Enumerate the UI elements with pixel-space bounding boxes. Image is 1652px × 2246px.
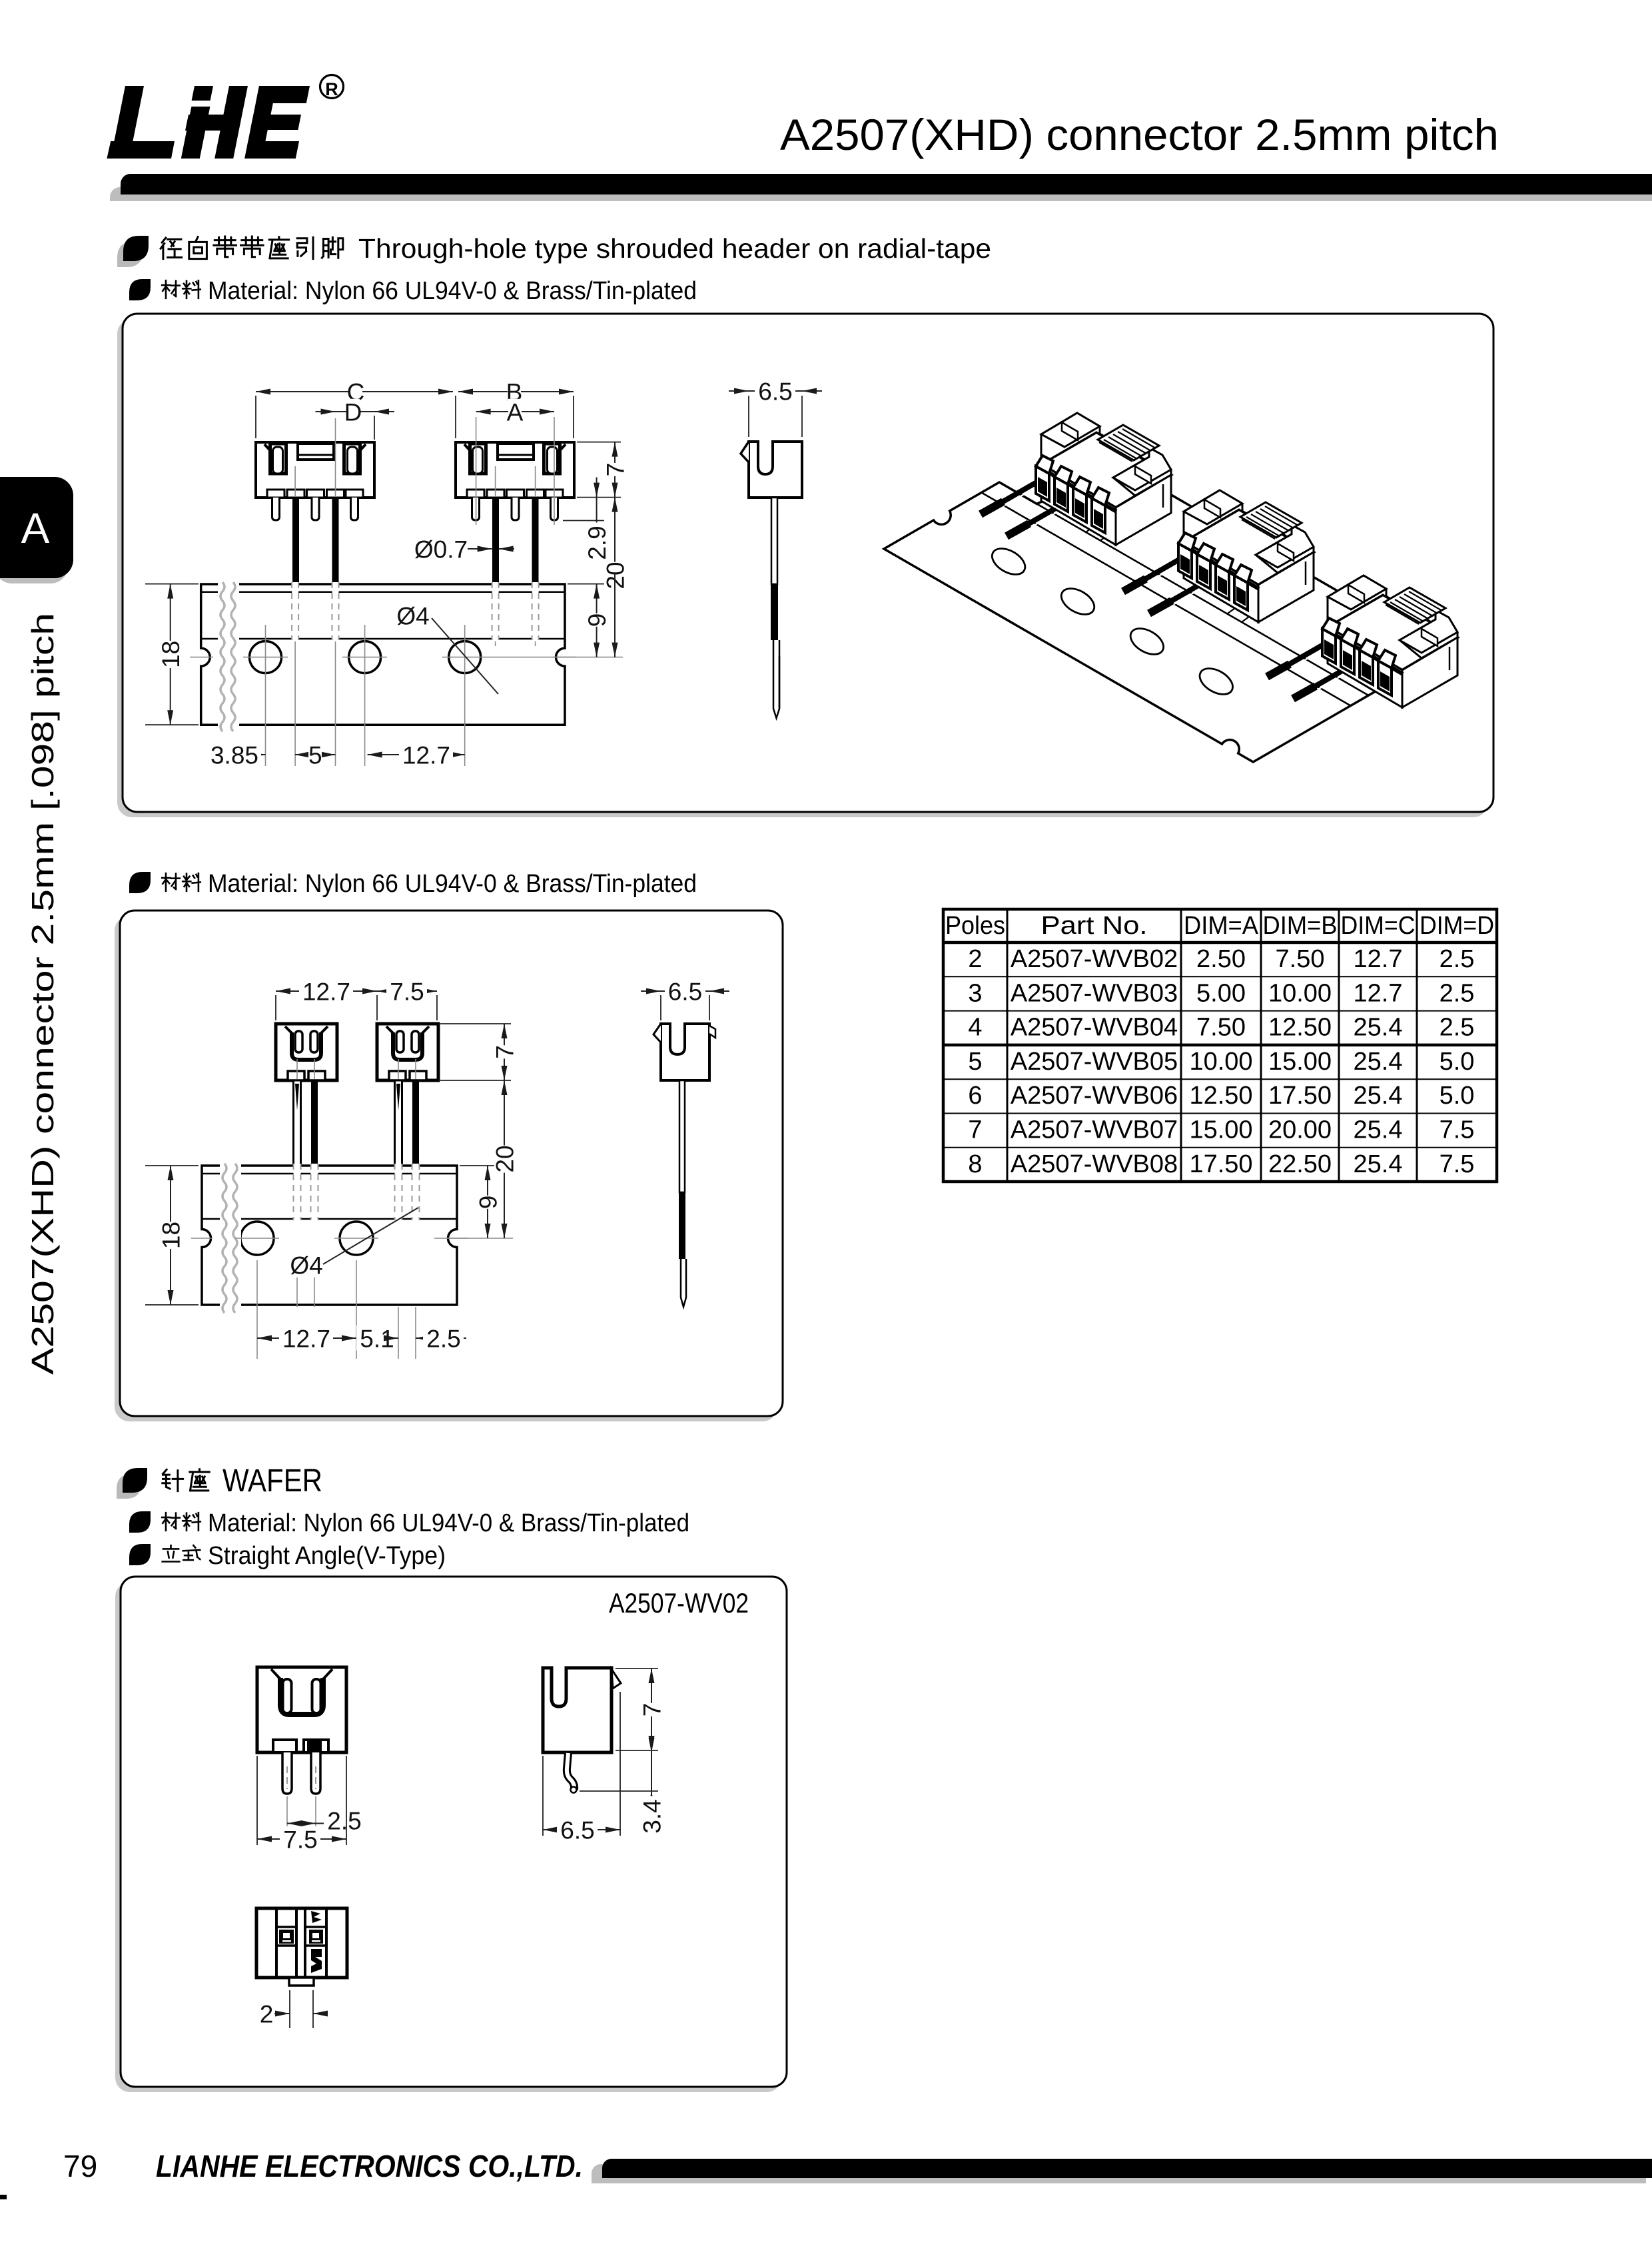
svg-text:12.50: 12.50 (1268, 1014, 1332, 1042)
svg-text:25.4: 25.4 (1354, 1014, 1403, 1042)
svg-text:9: 9 (584, 613, 611, 627)
svg-text:7.50: 7.50 (1276, 945, 1325, 973)
svg-text:4: 4 (968, 1014, 982, 1042)
svg-text:17.50: 17.50 (1189, 1150, 1252, 1178)
svg-text:Ø4: Ø4 (290, 1252, 322, 1279)
svg-text:A2507(XHD) connector 2.5mm pit: A2507(XHD) connector 2.5mm pitch (780, 110, 1499, 159)
svg-text:LIANHE ELECTRONICS CO.,LTD.: LIANHE ELECTRONICS CO.,LTD. (156, 2149, 583, 2183)
svg-text:12.50: 12.50 (1189, 1082, 1252, 1110)
svg-text:2.50: 2.50 (1196, 945, 1246, 973)
svg-text:22.50: 22.50 (1268, 1150, 1332, 1178)
svg-text:7.50: 7.50 (1196, 1014, 1246, 1042)
svg-text:A2507(XHD) connector 2.5mm [.0: A2507(XHD) connector 2.5mm [.098] pitch (25, 613, 60, 1375)
svg-text:6: 6 (968, 1082, 982, 1110)
svg-text:DIM=D: DIM=D (1420, 912, 1494, 940)
svg-text:DIM=C: DIM=C (1341, 912, 1416, 940)
svg-text:2.5: 2.5 (1440, 1014, 1475, 1042)
svg-text:A2507-WVB07: A2507-WVB07 (1011, 1116, 1178, 1144)
svg-text:2.5: 2.5 (426, 1325, 460, 1352)
svg-text:79: 79 (63, 2149, 97, 2183)
svg-text:5.0: 5.0 (1440, 1082, 1475, 1110)
svg-text:Part No.: Part No. (1041, 912, 1148, 940)
svg-text:Material: Nylon 66 UL94V-0 &: Material: Nylon 66 UL94V-0 & Brass/Tin-p… (208, 870, 697, 898)
svg-text:A: A (21, 504, 50, 552)
svg-text:2: 2 (968, 945, 982, 973)
svg-text:8: 8 (968, 1150, 982, 1178)
svg-text:A2507-WVB08: A2507-WVB08 (1011, 1150, 1178, 1178)
svg-text:17.50: 17.50 (1268, 1082, 1332, 1110)
svg-text:Through-hole type shrouded hea: Through-hole type shrouded header on rad… (358, 233, 991, 264)
svg-text:Ø4: Ø4 (396, 602, 429, 629)
svg-text:12.7: 12.7 (282, 1325, 330, 1352)
svg-text:2: 2 (260, 2000, 274, 2028)
svg-text:Material: Nylon 66 UL94V-0 &: Material: Nylon 66 UL94V-0 & Brass/Tin-p… (208, 1509, 689, 1537)
svg-text:25.4: 25.4 (1354, 1116, 1403, 1144)
svg-text:A2507-WVB04: A2507-WVB04 (1011, 1014, 1178, 1042)
svg-text:A: A (507, 398, 524, 426)
svg-text:D: D (344, 398, 362, 426)
svg-text:6.5: 6.5 (560, 1816, 594, 1844)
svg-text:25.4: 25.4 (1354, 1048, 1403, 1076)
svg-text:12.7: 12.7 (302, 978, 350, 1005)
svg-text:Material: Nylon 66 UL94V-0 &: Material: Nylon 66 UL94V-0 & Brass/Tin-p… (208, 277, 697, 305)
svg-text:25.4: 25.4 (1354, 1150, 1403, 1178)
svg-text:15.00: 15.00 (1268, 1048, 1332, 1076)
svg-text:5.00: 5.00 (1196, 979, 1246, 1007)
svg-text:3.4: 3.4 (638, 1799, 665, 1833)
svg-text:5: 5 (968, 1048, 982, 1076)
svg-text:6.5: 6.5 (668, 978, 702, 1005)
svg-text:Straight Angle(V-Type): Straight Angle(V-Type) (208, 1542, 446, 1570)
svg-text:3.85: 3.85 (210, 741, 258, 769)
svg-text:6.5: 6.5 (758, 378, 792, 405)
svg-text:2.5: 2.5 (1440, 945, 1475, 973)
svg-text:7: 7 (491, 1045, 518, 1059)
svg-text:7: 7 (602, 463, 629, 477)
svg-text:7.5: 7.5 (1440, 1116, 1475, 1144)
svg-text:20.00: 20.00 (1268, 1116, 1332, 1144)
svg-text:25.4: 25.4 (1354, 1082, 1403, 1110)
svg-text:DIM=A: DIM=A (1184, 912, 1259, 940)
svg-text:7: 7 (638, 1703, 665, 1717)
svg-text:R: R (325, 79, 338, 99)
svg-text:7: 7 (968, 1116, 982, 1144)
svg-text:A2507-WV02: A2507-WV02 (609, 1587, 749, 1619)
svg-text:7.5: 7.5 (390, 978, 424, 1005)
svg-text:12.7: 12.7 (1354, 979, 1403, 1007)
svg-text:2.9: 2.9 (584, 526, 611, 560)
svg-text:WAFER: WAFER (222, 1463, 322, 1499)
svg-text:A2507-WVB05: A2507-WVB05 (1011, 1048, 1178, 1076)
svg-text:DIM=B: DIM=B (1263, 912, 1338, 940)
svg-text:Ø0.7: Ø0.7 (414, 536, 468, 563)
svg-text:5: 5 (308, 741, 322, 769)
svg-text:A2507-WVB02: A2507-WVB02 (1011, 945, 1178, 973)
svg-text:A2507-WVB03: A2507-WVB03 (1011, 979, 1178, 1007)
svg-text:20: 20 (491, 1145, 518, 1172)
svg-text:10.00: 10.00 (1189, 1048, 1252, 1076)
svg-text:9: 9 (474, 1196, 502, 1210)
svg-text:15.00: 15.00 (1189, 1116, 1252, 1144)
svg-text:2.5: 2.5 (327, 1807, 361, 1834)
svg-text:18: 18 (157, 641, 185, 668)
svg-text:7.5: 7.5 (283, 1826, 317, 1853)
svg-text:10.00: 10.00 (1268, 979, 1332, 1007)
svg-text:5.0: 5.0 (1440, 1048, 1475, 1076)
svg-text:2.5: 2.5 (1440, 979, 1475, 1007)
svg-text:Poles: Poles (945, 912, 1005, 940)
svg-text:12.7: 12.7 (1354, 945, 1403, 973)
svg-text:3: 3 (968, 979, 982, 1007)
svg-text:12.7: 12.7 (402, 741, 450, 769)
svg-text:7.5: 7.5 (1440, 1150, 1475, 1178)
svg-text:18: 18 (157, 1222, 185, 1249)
svg-text:A2507-WVB06: A2507-WVB06 (1011, 1082, 1178, 1110)
